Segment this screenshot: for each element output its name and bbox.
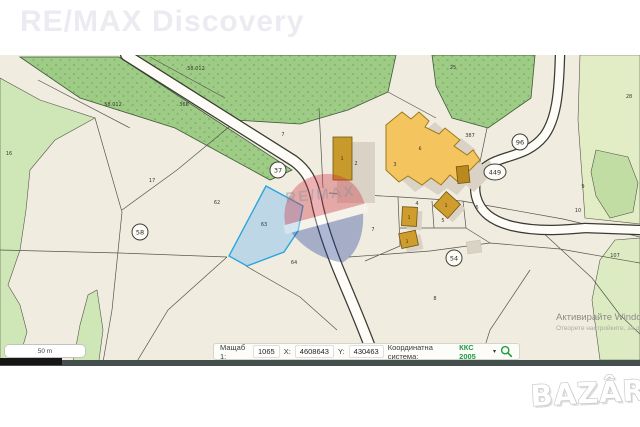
parcel-label: 4: [415, 201, 418, 207]
y-coordinate-input[interactable]: 430463: [349, 345, 384, 358]
road-badge: 58: [132, 224, 148, 240]
parcel-label: 58.012: [187, 66, 205, 72]
parcel-label: 16: [6, 151, 12, 157]
svg-text:54: 54: [450, 254, 458, 262]
svg-text:58: 58: [136, 228, 144, 236]
parcel-label: 63: [261, 222, 267, 228]
parcel-label: 387: [465, 133, 475, 139]
crs-select[interactable]: ККС 2005: [459, 343, 488, 361]
parcel-label: 25: [450, 65, 456, 71]
svg-text:96: 96: [516, 138, 524, 146]
parcel-label: 17: [149, 178, 155, 184]
parcel-label: 2: [354, 161, 357, 167]
parcel-label: 8: [433, 296, 436, 302]
brand-watermark: RE/MAX Discovery: [20, 5, 304, 39]
parcel-label: 7: [371, 227, 374, 233]
parcel-label: 368: [179, 102, 189, 108]
crs-label: Координатна система:: [388, 343, 455, 361]
scale-bar-label-box: 50 m: [4, 344, 86, 358]
parcel-label: 28: [626, 94, 632, 100]
bazar-logo-text: BAZÂR: [530, 373, 640, 413]
cadastral-map-viewer: RE/MAX 3758964495458.01258.0123682528161…: [0, 0, 640, 427]
parcel-label: 3: [393, 162, 396, 168]
parcel-label: 1: [406, 239, 409, 245]
windows-activation-line2: Отворете настройките, за да активирате W…: [556, 325, 640, 332]
parcel-label: 64: [291, 260, 297, 266]
chevron-down-icon[interactable]: ▾: [493, 348, 496, 355]
scale-input[interactable]: 1065: [253, 345, 280, 358]
parcel-label: 9: [581, 184, 584, 190]
road-badge: 37: [270, 162, 286, 178]
parcel-label: 6: [419, 146, 422, 152]
parcel-label: 7: [281, 132, 284, 138]
building-low: [399, 230, 419, 248]
map-toolbar: Мащаб 1: 1065 X: 4608643 Y: 430463 Коорд…: [213, 343, 520, 360]
windows-activation-line1: Активирайте Windows: [556, 312, 640, 323]
scale-bar-label: 50 m: [38, 348, 52, 355]
search-button[interactable]: [500, 345, 513, 358]
parcel-label: 1: [408, 215, 411, 221]
search-icon: [500, 345, 513, 358]
svg-text:449: 449: [489, 168, 501, 176]
x-coordinate-input[interactable]: 4608643: [295, 345, 334, 358]
y-coordinate-label: Y:: [338, 347, 345, 356]
building-small-east: [456, 165, 470, 183]
x-coordinate-label: X:: [284, 347, 291, 356]
road-badge: 54: [446, 250, 462, 266]
bazar-logo: BAZÂR BAZÂR: [524, 366, 640, 426]
parcel-label: 10: [575, 208, 581, 214]
windows-activation-watermark: Активирайте Windows Отворете настройките…: [556, 312, 640, 332]
svg-text:37: 37: [274, 166, 282, 174]
scale-bar-line: [0, 358, 62, 365]
parcel-label: 1: [445, 203, 448, 209]
parcel-label: 58.012: [104, 102, 122, 108]
road-badge: 449: [484, 164, 506, 180]
parcel-label: 5: [441, 218, 444, 224]
parcel-label: 6: [475, 205, 478, 211]
road-badge: 96: [512, 134, 528, 150]
map-bottom-border: [0, 360, 640, 366]
scale-label: Мащаб 1:: [220, 343, 249, 361]
parcel-label: 107: [610, 253, 620, 259]
parcel-label: 62: [214, 200, 220, 206]
parcel-label: 1: [341, 156, 344, 162]
